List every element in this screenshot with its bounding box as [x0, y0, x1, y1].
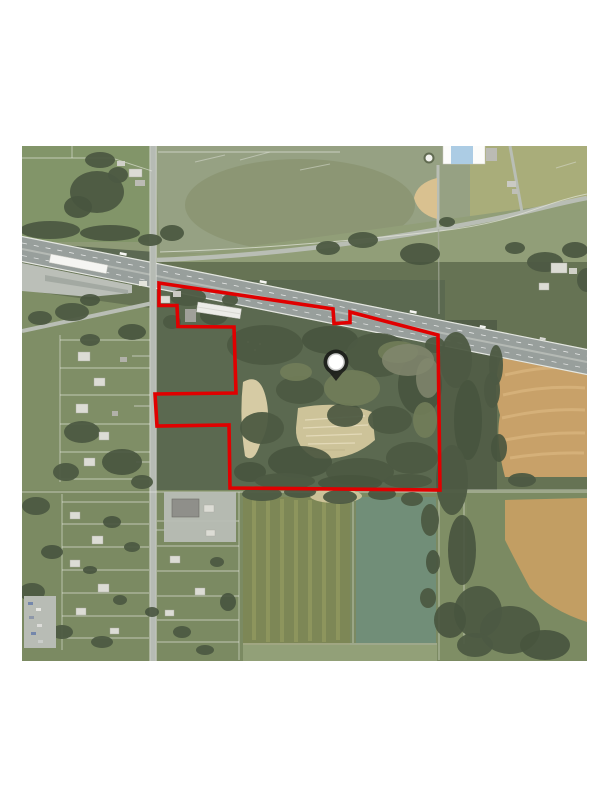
aerial-photo-svg: [22, 146, 587, 661]
haze-overlay: [22, 146, 587, 661]
aerial-photo: [22, 146, 587, 661]
marker-dot: [328, 354, 344, 370]
page: [0, 0, 612, 792]
